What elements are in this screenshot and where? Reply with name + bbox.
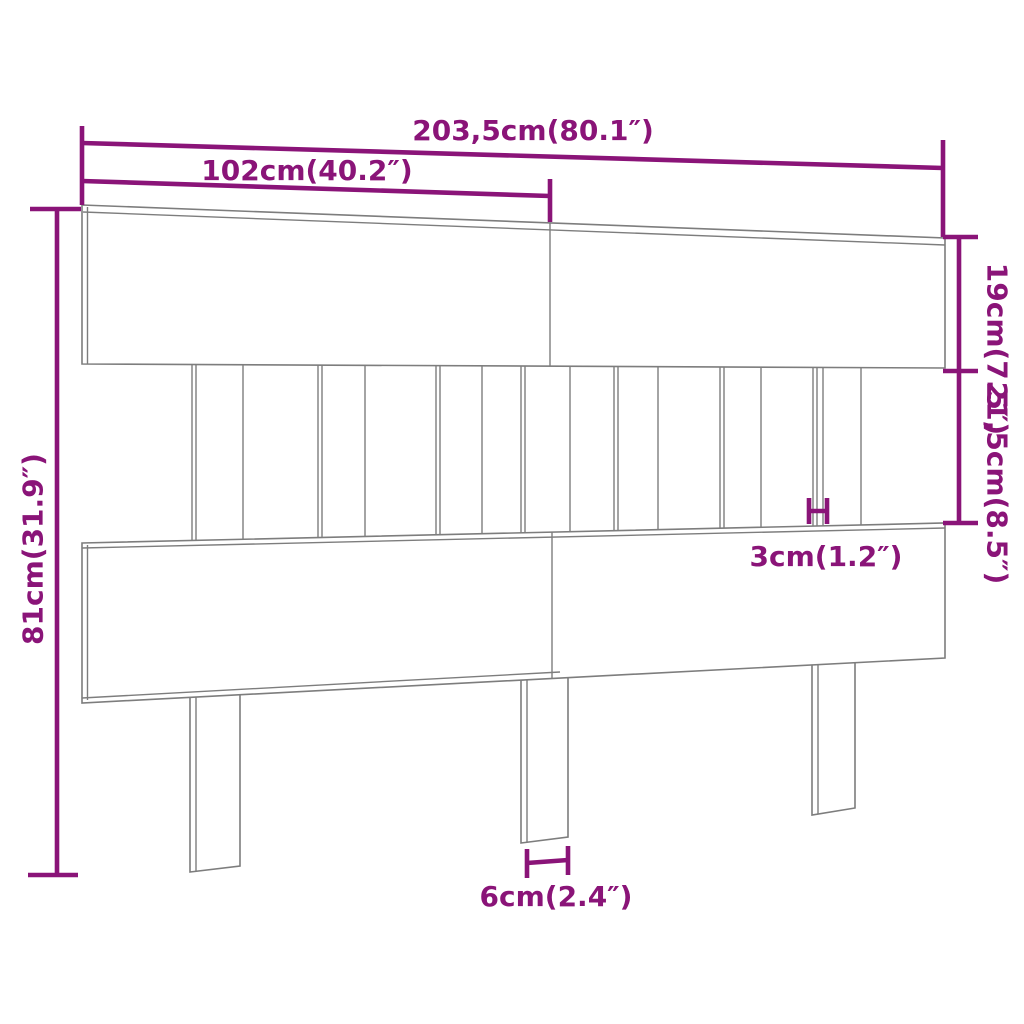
leg-width-label: 6cm(2.4″)	[480, 880, 633, 913]
diagram-canvas: 203,5cm(80.1″) 102cm(40.2″) 19cm(7.5″) 2…	[0, 0, 1024, 1024]
total-width-label: 203,5cm(80.1″)	[412, 114, 654, 147]
total-height-label: 81cm(31.9″)	[17, 453, 50, 645]
middle-leg	[521, 677, 568, 843]
headboard-diagram: 203,5cm(80.1″) 102cm(40.2″) 19cm(7.5″) 2…	[0, 0, 1024, 1024]
half-width-label: 102cm(40.2″)	[201, 154, 412, 187]
left-leg	[190, 694, 240, 872]
slat-width-label: 3cm(1.2″)	[750, 540, 903, 573]
middle-section-height-label: 21,5cm(8.5″)	[981, 382, 1014, 585]
leg-width-dim-bar	[527, 860, 568, 863]
